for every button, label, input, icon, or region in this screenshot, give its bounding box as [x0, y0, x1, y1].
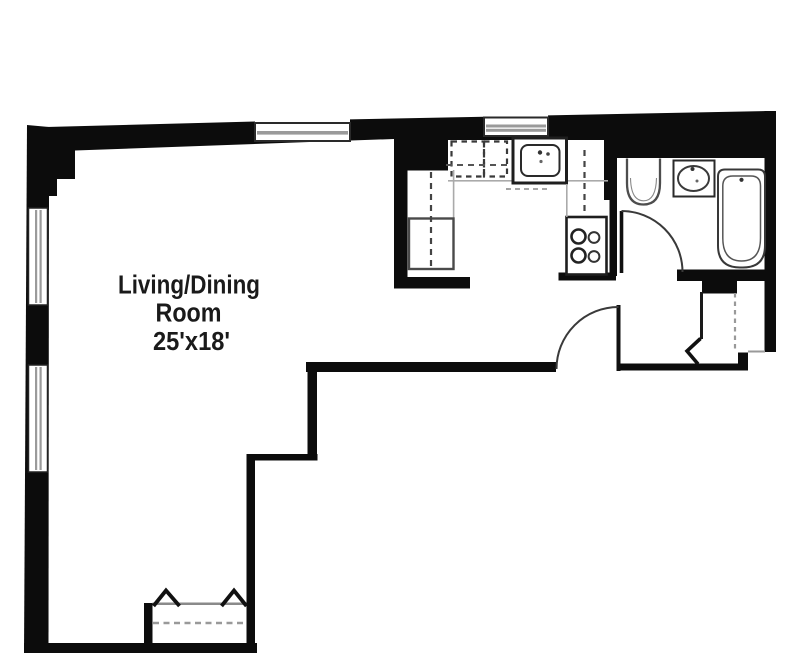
- svg-text:25'x18': 25'x18': [153, 328, 230, 356]
- svg-text:Living/Dining: Living/Dining: [118, 272, 260, 300]
- svg-text:Room: Room: [156, 300, 222, 328]
